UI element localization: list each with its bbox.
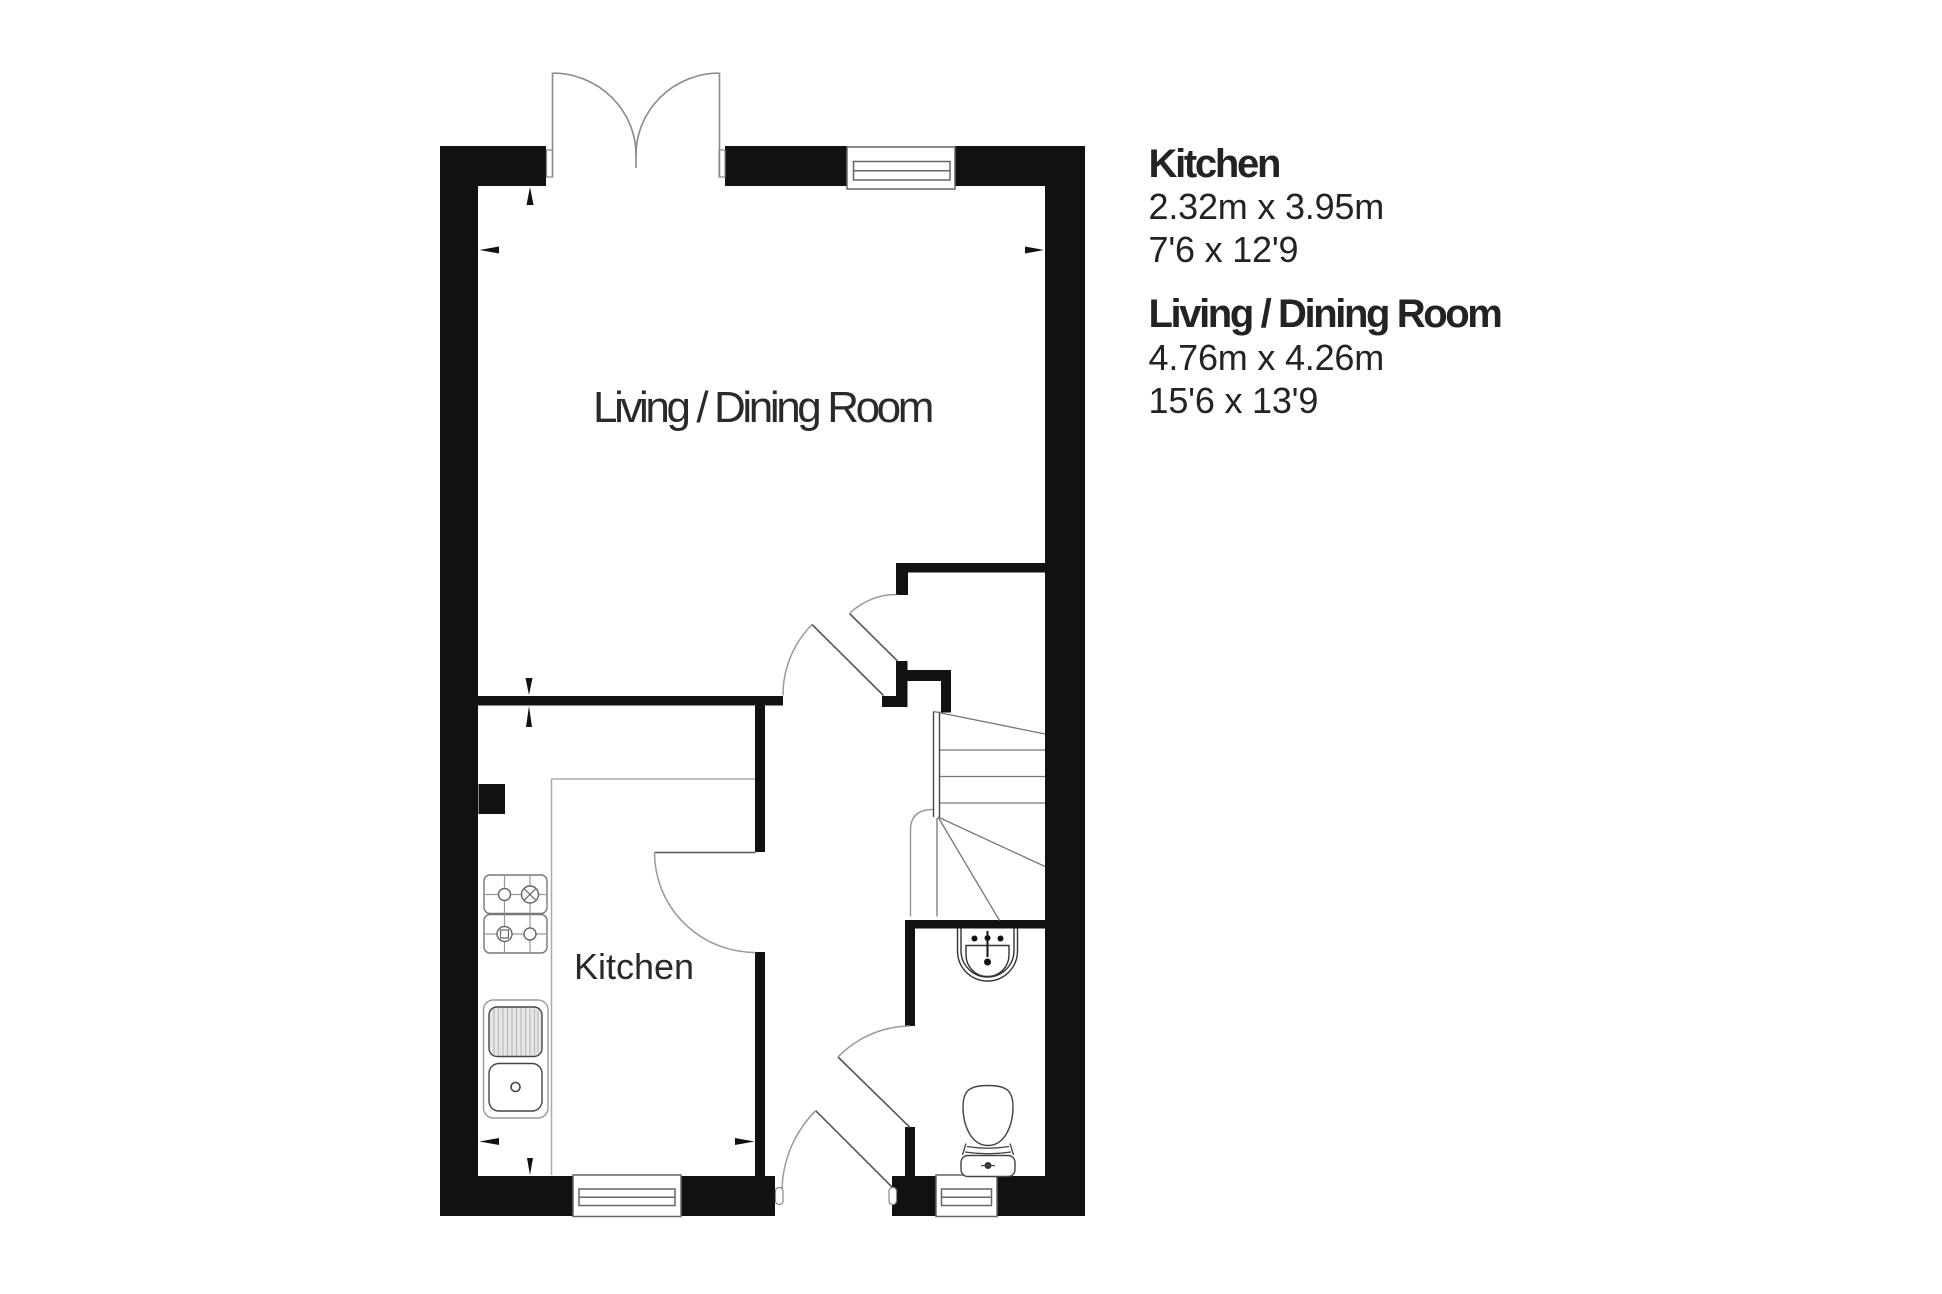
svg-text:7'6 x 12'9: 7'6 x 12'9 [1149, 229, 1299, 270]
svg-text:Kitchen: Kitchen [1149, 142, 1280, 186]
svg-text:Kitchen: Kitchen [574, 946, 694, 987]
svg-text:15'6 x 13'9: 15'6 x 13'9 [1149, 380, 1319, 421]
svg-text:4.76m x 4.26m: 4.76m x 4.26m [1149, 337, 1385, 378]
svg-text:Living / Dining Room: Living / Dining Room [1149, 292, 1502, 336]
svg-text:2.32m x 3.95m: 2.32m x 3.95m [1149, 186, 1385, 227]
svg-text:Living / Dining Room: Living / Dining Room [593, 383, 932, 432]
